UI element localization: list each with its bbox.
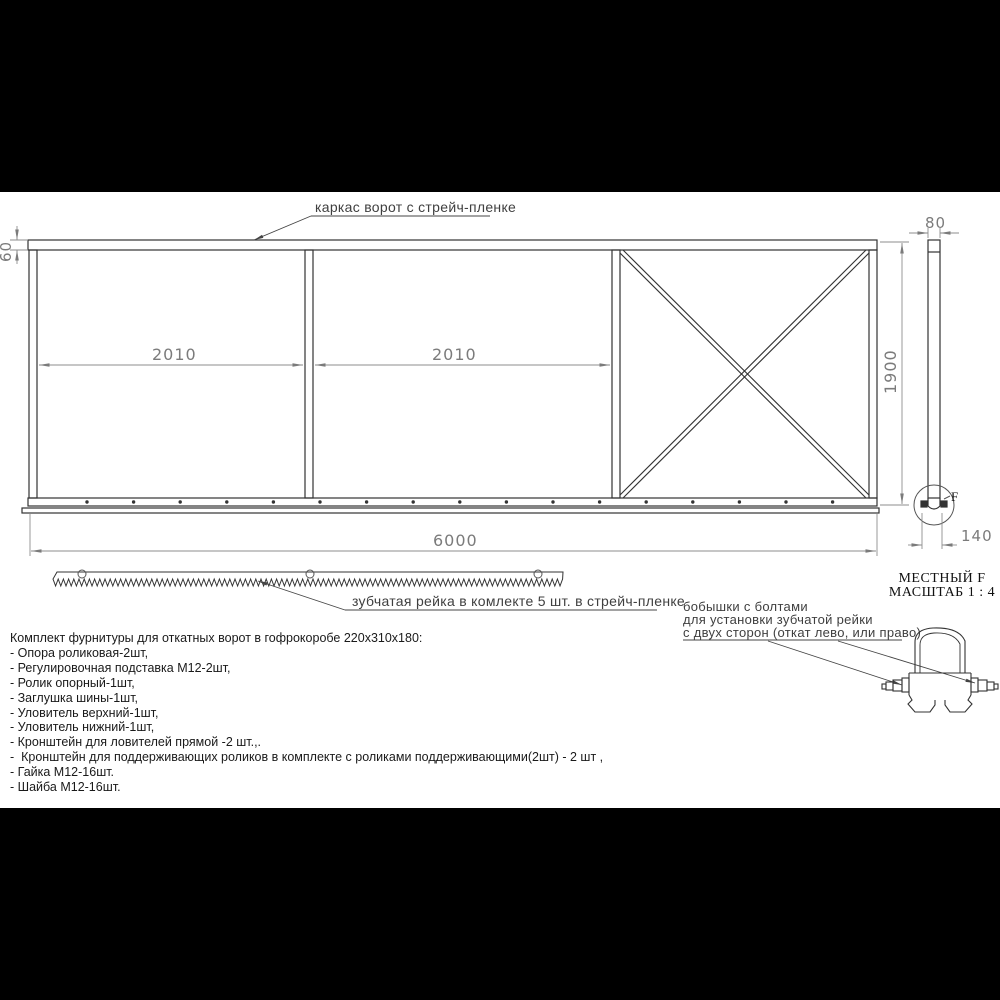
top-rail — [28, 240, 877, 250]
rail-bolt-dot — [85, 500, 88, 503]
detail-view-title: МЕСТНЫЙ F — [898, 569, 985, 586]
rail-bolt-dot — [598, 500, 601, 503]
bottom-track — [22, 508, 879, 513]
frame-label-leader — [254, 216, 311, 240]
detail-view-drawing — [882, 628, 998, 712]
annotations: каркас ворот с стрейч-пленке зубчатая ре… — [254, 199, 975, 685]
rail-bolt-dot — [831, 500, 834, 503]
rail-bolt-dot — [551, 500, 554, 503]
x-brace-diagonals — [620, 250, 869, 498]
dim-text-profile-width: 80 — [925, 214, 946, 232]
parts-list: Комплект фурнитуры для откатных ворот в … — [10, 631, 650, 795]
rail-bolt-dot — [412, 500, 415, 503]
detail-bolt-right — [971, 678, 998, 692]
detail-rail-body — [909, 673, 971, 695]
detail-profile-inner — [920, 633, 960, 673]
dim-text-total-width: 6000 — [433, 531, 478, 550]
detail-foot-right — [945, 695, 972, 712]
parts-list-item: - Опора роликовая-2шт, — [10, 646, 650, 661]
frame-label: каркас ворот с стрейч-пленке — [315, 199, 516, 215]
right-post — [869, 250, 877, 498]
rack-hole-1 — [78, 570, 86, 578]
dim-rail-width — [908, 513, 957, 549]
rail-bolt-dot — [645, 500, 648, 503]
gate-drawing-canvas: F — [0, 0, 1000, 1000]
parts-list-item: - Регулировочная подставка М12-2шт, — [10, 661, 650, 676]
rail-bolt-dot — [458, 500, 461, 503]
parts-list-item: - Уловитель верхний-1шт, — [10, 706, 650, 721]
rail-bolt-dot — [225, 500, 228, 503]
rail-bolt-dot — [691, 500, 694, 503]
frame-label-group: каркас ворот с стрейч-пленке — [254, 199, 516, 240]
gear-rack — [53, 570, 563, 586]
boss-label-group: бобышки с болтами для установки зубчатой… — [683, 599, 975, 685]
rail-bolt-dot — [784, 500, 787, 503]
parts-list-item: - Заглушка шины-1шт, — [10, 691, 650, 706]
parts-list-item: - Шайба М12-16шт. — [10, 780, 650, 795]
left-post — [29, 250, 37, 498]
rail-bolt-dot — [132, 500, 135, 503]
middle-post — [305, 250, 313, 498]
parts-list-item: - Ролик опорный-1шт, — [10, 676, 650, 691]
detail-profile-outer — [915, 628, 965, 673]
boss-label-leader-left — [768, 641, 902, 685]
brace-panel-left-post — [612, 250, 620, 498]
rack-hole-2 — [306, 570, 314, 578]
rail-bolt-dot — [505, 500, 508, 503]
side-profile-bar — [928, 240, 940, 498]
parts-list-item: - Уловитель нижний-1шт, — [10, 720, 650, 735]
bottom-rail — [28, 498, 877, 506]
parts-list-item: - Гайка М12-16шт. — [10, 765, 650, 780]
parts-list-item: - Кронштейн для ловителей прямой -2 шт.,… — [10, 735, 650, 750]
detail-ref-letter: F — [951, 489, 958, 504]
rack-hole-3 — [534, 570, 542, 578]
parts-list-title: Комплект фурнитуры для откатных ворот в … — [10, 631, 650, 646]
dim-text-frame-height: 1900 — [881, 349, 900, 394]
rail-bolt-dot — [179, 500, 182, 503]
detail-view-scale: МАСШТАБ 1 : 4 — [889, 585, 995, 600]
rail-bolt-dot — [272, 500, 275, 503]
gate-frame-side-view — [921, 240, 947, 509]
parts-list-item: - Кронштейн для поддерживающих роликов в… — [10, 750, 650, 765]
rail-bolt-dots — [85, 500, 834, 503]
gate-frame-front-view — [22, 240, 879, 513]
side-shoe — [928, 498, 940, 509]
detail-callout-circle — [914, 485, 954, 525]
detail-foot-left — [908, 695, 935, 712]
dim-text-rail-width: 140 — [961, 527, 993, 545]
dim-text-panel2: 2010 — [432, 345, 477, 364]
dim-text-panel1: 2010 — [152, 345, 197, 364]
rail-bolt-dot — [365, 500, 368, 503]
rail-bolt-dot — [318, 500, 321, 503]
detail-callout-tick — [944, 496, 950, 499]
rack-label: зубчатая рейка в комлекте 5 шт. в стрейч… — [352, 593, 685, 609]
boss-label-line3: с двух сторон (откат лево, или право) — [683, 625, 921, 640]
boss-label-leader-right — [838, 641, 975, 683]
rail-bolt-dot — [738, 500, 741, 503]
rack-teeth — [53, 572, 563, 586]
side-boss-left — [921, 501, 927, 507]
dim-text-top-rail-height: 60 — [0, 241, 15, 262]
side-boss-right — [941, 501, 947, 507]
